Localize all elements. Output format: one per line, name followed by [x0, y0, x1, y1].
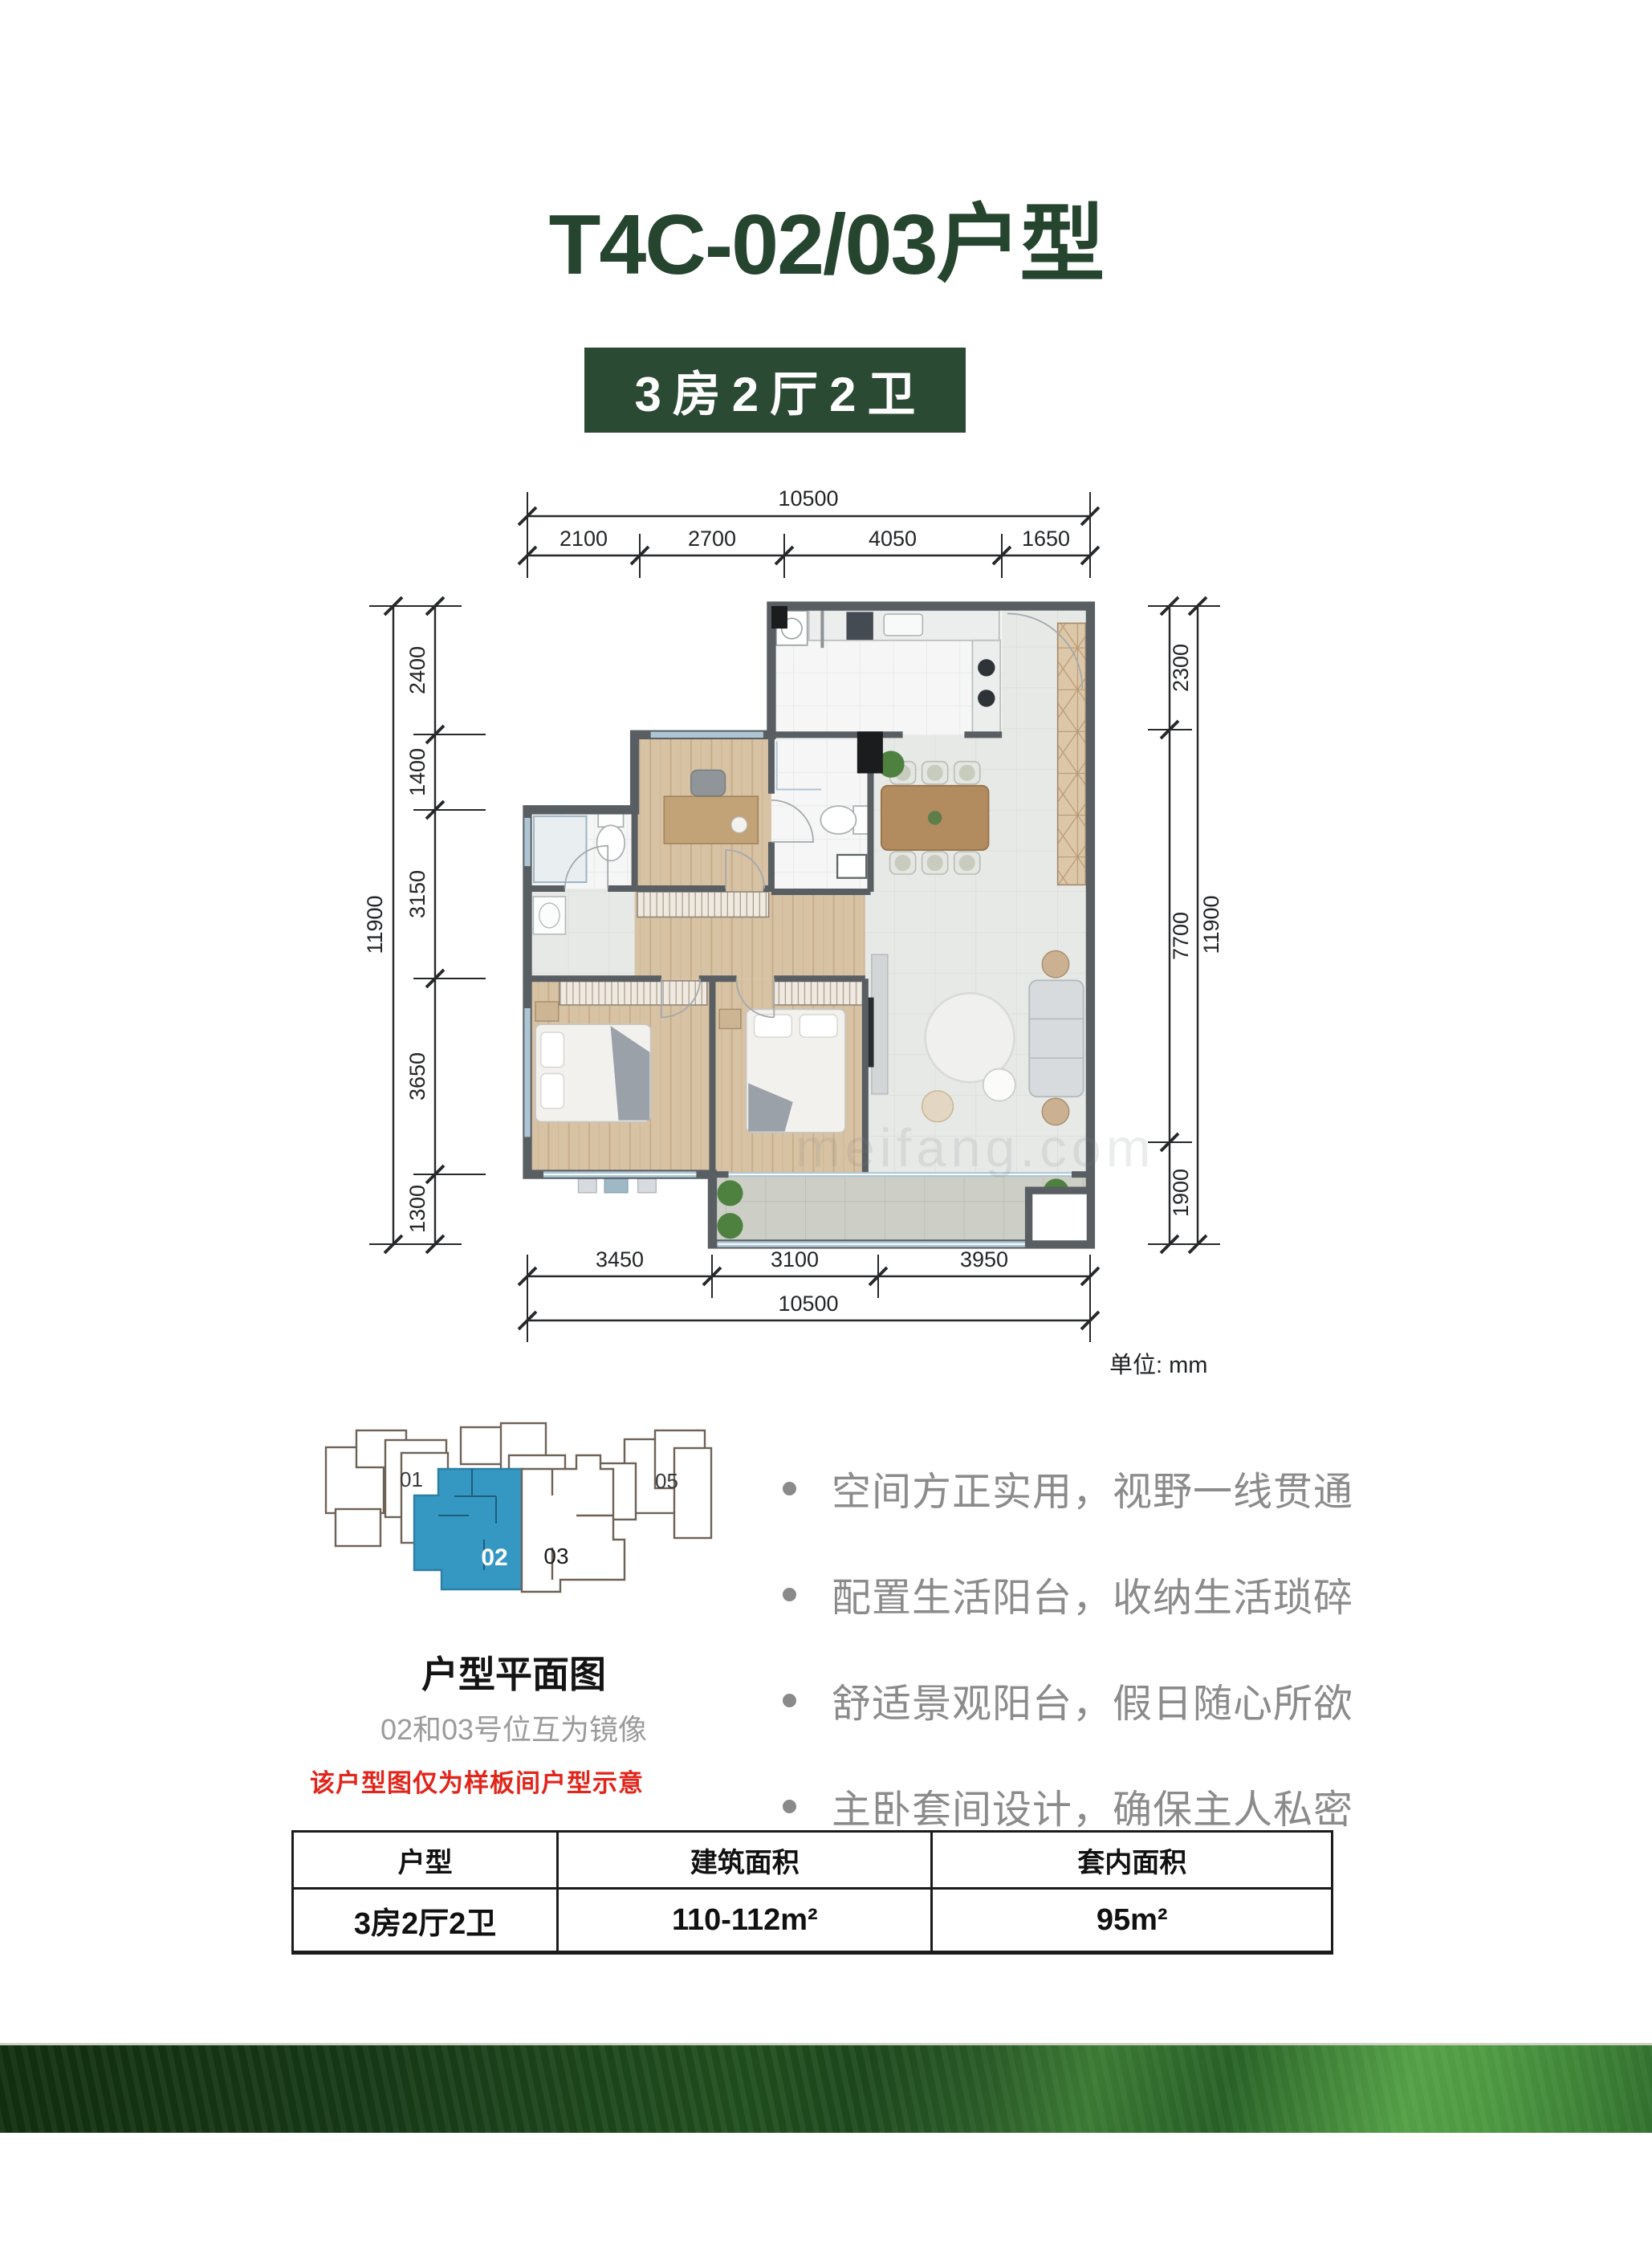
coffee-table [983, 1068, 1015, 1101]
dim-right-seg: 1900 [1169, 1169, 1193, 1217]
unit-label-03: 03 [543, 1544, 568, 1568]
dim-left-seg: 2400 [405, 646, 429, 694]
bullet-icon [783, 1800, 796, 1813]
sink [884, 614, 922, 636]
dim-left-total: 11900 [363, 895, 387, 954]
dim-top-total: 10500 [778, 486, 838, 511]
header-gross-area: 建筑面积 [558, 1832, 932, 1889]
dim-top-seg: 4050 [869, 527, 917, 551]
feature-text: 舒适景观阳台，假日随心所欲 [832, 1672, 1353, 1729]
page-title: T4C-02/03户型 [0, 175, 1652, 299]
vanity [533, 897, 565, 934]
dim-top-seg: 2700 [688, 527, 736, 551]
unit-03-outline [522, 1455, 625, 1592]
watermark: meifang.com [795, 1119, 1155, 1178]
pouf [922, 1091, 954, 1122]
dim-bottom-seg: 3100 [771, 1247, 819, 1271]
dim-top-seg: 2100 [559, 527, 608, 551]
bullet-icon [783, 1694, 796, 1707]
feature-list: 空间方正实用，视野一线贯通 配置生活阳台，收纳生活琐碎 舒适景观阳台，假日随心所… [783, 1466, 1361, 1890]
dim-bottom-seg: 3450 [596, 1247, 644, 1271]
feature-item: 空间方正实用，视野一线贯通 [783, 1466, 1361, 1511]
toilet [820, 806, 856, 834]
cell-net-area: 95m² [932, 1889, 1333, 1953]
toilet [597, 825, 625, 861]
header-net-area: 套内面积 [932, 1832, 1333, 1889]
feature-text: 空间方正实用，视野一线贯通 [832, 1460, 1353, 1517]
dim-right-total: 11900 [1199, 895, 1223, 954]
dining-set [881, 762, 989, 874]
key-plan-subcaption: 02和03号位互为镜像 [311, 1707, 716, 1748]
feature-text: 主卧套间设计，确保主人私密 [832, 1778, 1353, 1835]
stove-burner [978, 690, 995, 706]
sofa [1029, 980, 1083, 1096]
wardrobe-bedroom1 [559, 981, 707, 1005]
table-header-row: 户型 建筑面积 套内面积 [293, 1832, 1333, 1889]
table-row: 3房2厅2卫 110-112m² 95m² [293, 1889, 1333, 1953]
unit-label-05: 05 [655, 1469, 678, 1493]
chair [691, 770, 726, 795]
unit-type-badge: 3房2厅2卫 [584, 348, 966, 433]
key-plan-caption: 户型平面图 [311, 1646, 716, 1699]
nightstand [535, 1002, 559, 1021]
column [857, 731, 883, 773]
disclaimer-note: 该户型图仅为样板间户型示意 [310, 1763, 644, 1799]
floor-plan: 10500 2100 2700 4050 1650 11900 2400 140… [337, 458, 1268, 1389]
wardrobe-bedroom2 [774, 981, 862, 1005]
feature-item: 主卧套间设计，确保主人私密 [783, 1784, 1361, 1829]
fridge [846, 612, 873, 640]
feature-text: 配置生活阳台，收纳生活琐碎 [832, 1566, 1353, 1623]
cell-unit-type: 3房2厅2卫 [293, 1889, 558, 1953]
dim-top-seg: 1650 [1022, 527, 1070, 551]
dim-bottom-total: 10500 [778, 1292, 838, 1316]
storage-cabinet [1058, 623, 1086, 885]
side-table [1042, 951, 1068, 978]
poster-page: T4C-02/03户型 3房2厅2卫 [0, 0, 1652, 2254]
column [771, 606, 787, 629]
dim-left-seg: 3150 [405, 870, 429, 918]
spec-table: 户型 建筑面积 套内面积 3房2厅2卫 110-112m² 95m² [291, 1830, 1333, 1955]
header-unit-type: 户型 [293, 1832, 558, 1889]
key-plan: 01 02 03 05 [311, 1419, 716, 1616]
equipment-platform [1029, 1190, 1091, 1244]
dim-right-seg: 2300 [1169, 644, 1193, 692]
hall-cabinet [637, 892, 769, 917]
shower [534, 816, 586, 882]
dim-bottom-seg: 3950 [960, 1247, 1008, 1271]
dim-left-seg: 3650 [405, 1052, 429, 1101]
tv-console [872, 954, 888, 1094]
unit-label: 单位: mm [1109, 1352, 1207, 1378]
footer-green-band [0, 2043, 1652, 2133]
bullet-icon [783, 1588, 796, 1601]
basin [837, 855, 866, 878]
bullet-icon [783, 1482, 796, 1495]
dim-left-seg: 1400 [405, 748, 429, 796]
feature-item: 舒适景观阳台，假日随心所欲 [783, 1678, 1361, 1723]
dim-left-seg: 1300 [405, 1185, 429, 1233]
plan-drawing: meifang.com [527, 606, 1155, 1244]
nightstand [719, 1009, 741, 1028]
dim-right-seg: 7700 [1169, 912, 1193, 960]
stove-burner [978, 659, 995, 676]
unit-label-01: 01 [400, 1467, 423, 1491]
feature-item: 配置生活阳台，收纳生活琐碎 [783, 1572, 1361, 1617]
unit-label-02: 02 [481, 1544, 507, 1571]
cell-gross-area: 110-112m² [558, 1889, 932, 1953]
